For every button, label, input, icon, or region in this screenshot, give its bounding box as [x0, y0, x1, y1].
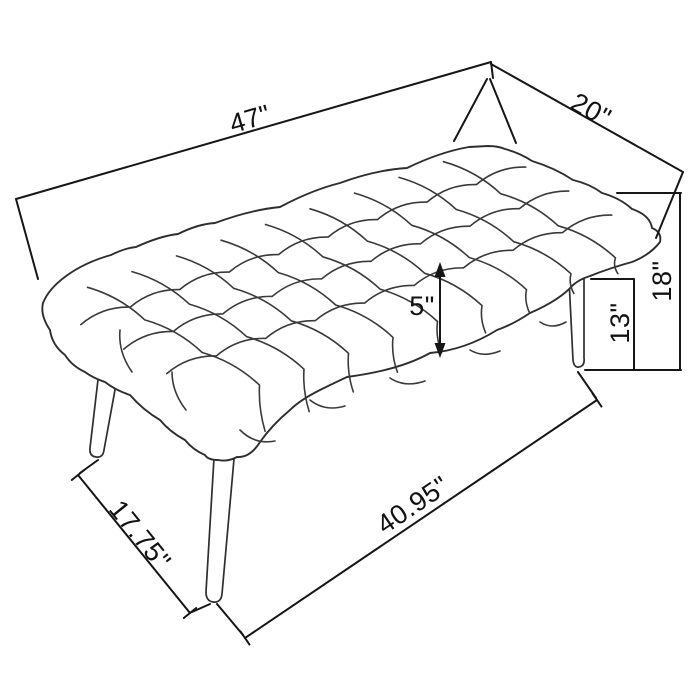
bench-dimension-diagram: 47" 20" 18" 13" 5" 17.75" 40.95": [0, 0, 700, 700]
dim-leg-height-label: 13": [605, 302, 635, 343]
dim-cushion-label: 5": [409, 291, 435, 321]
dim-height-label: 18": [647, 260, 677, 301]
